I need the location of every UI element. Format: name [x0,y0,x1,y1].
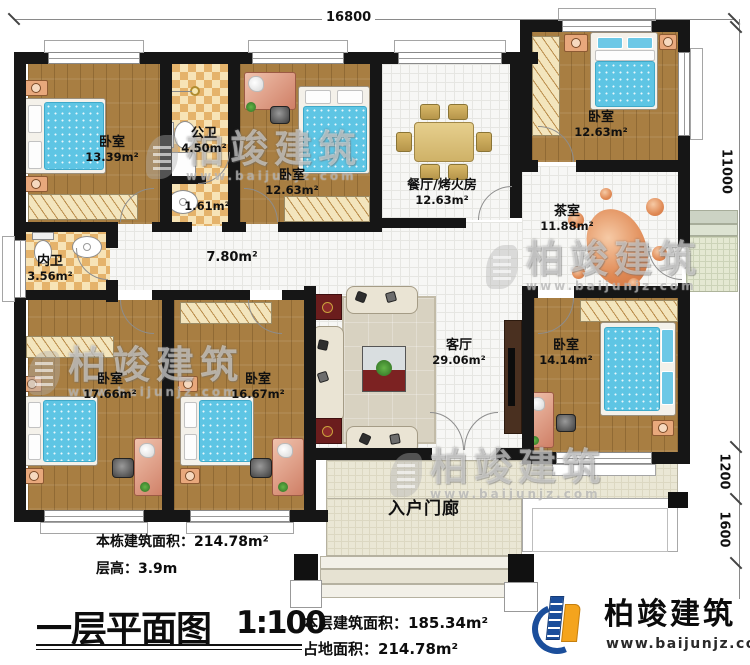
wall [278,222,382,232]
wall [308,448,432,460]
room-name: 客厅 [432,338,485,354]
dining-chair [396,132,412,152]
porch-corner-column [668,492,688,508]
floor-area-label: 本层建筑面积： [303,614,408,632]
bed [24,396,98,466]
dimension-right-step: 1200 [717,452,732,492]
nightstand [24,176,48,192]
shower-hose [170,91,192,92]
desk-lamp [248,76,264,92]
brand-logo: 柏竣建筑 www.baijunjz.com [528,590,748,662]
brand-url: www.baijunjz.com [606,636,750,652]
porch-side-step-inner [532,508,668,552]
room-area: 14.14m² [539,354,592,368]
window [678,52,690,136]
floor-area-value: 185.34m² [408,614,488,632]
wardrobe [532,36,560,136]
wall [382,218,466,228]
footprint-area: 占地面积：214.78m² [303,638,458,659]
room-area: 7.80m² [206,250,257,266]
room-label-dining: 餐厅/烤火房 12.63m² [407,178,477,207]
window [44,510,144,522]
room-name: 卧室 [231,372,284,388]
porch-step-1 [320,556,510,569]
floor-area: 本层建筑面积：185.34m² [303,612,488,633]
wardrobe [26,336,114,358]
wall [106,222,118,248]
window [556,452,652,464]
window-sill [552,464,656,476]
dimension-line-right [739,19,740,599]
floor-height: 层高：3.9m [96,558,177,578]
footprint-label: 占地面积： [303,640,378,658]
room-area: 12.63m² [407,194,477,208]
room-name: 茶室 [540,204,593,220]
floor-height-value: 3.9m [138,561,177,577]
plant-icon [278,482,288,492]
plant-icon [140,482,150,492]
wall [160,52,172,230]
dimension-tick [730,557,743,570]
room-label-tea: 茶室 11.88m² [540,204,593,233]
room-label-bedroom6: 卧室 14.14m² [539,338,592,367]
room-area: 16.67m² [231,388,284,402]
nightstand [24,80,48,96]
room-area: 11.88m² [540,220,593,234]
cushion [317,339,329,351]
window [398,52,502,64]
room-area: 3.56m² [27,270,72,284]
room-area: 4.50m² [181,142,226,156]
desk-lamp [139,443,155,458]
window [48,52,140,64]
room-name: 卧室 [265,168,318,184]
room-name: 卧室 [539,338,592,354]
room-label-porch: 入户门廊 [388,494,460,519]
nightstand [178,376,198,392]
bed [298,86,370,174]
room-label-bedroom3: 卧室 12.63m² [574,110,627,139]
room-label-living: 客厅 29.06m² [432,338,485,367]
room-area: 12.63m² [574,126,627,140]
room-area: 1.61m² [184,200,229,214]
tv-icon [508,348,515,406]
dining-table [414,122,474,162]
tea-rug-dot [572,266,585,279]
wall [370,52,382,230]
cushion [389,433,401,445]
wall [26,290,118,300]
wall [678,135,690,247]
toilet-tank [32,232,54,240]
bed [590,32,658,110]
brand-name: 柏竣建筑 [604,600,736,630]
wall [574,286,690,298]
porch-pillar-right [508,554,534,582]
window-sill [690,48,703,140]
room-area: 29.06m² [432,354,485,368]
room-label-inner-bath: 内卫 3.56m² [27,254,72,283]
bed [600,322,676,416]
tea-rug-dot [600,188,612,200]
nightstand [652,420,674,436]
room-name: 卧室 [85,135,138,151]
window [14,240,26,298]
room-name: 卧室 [574,110,627,126]
porch-pillar-left [294,554,318,580]
floor-plan-image: 柏竣建筑 www.baijunjz.com 柏竣建筑 www.baijunjz.… [0,0,750,665]
room-name: 公卫 [181,126,226,142]
nightstand [180,468,200,484]
room-label-bath-lobby: 1.61m² [184,200,229,214]
window [252,52,344,64]
footprint-value: 214.78m² [378,640,458,658]
wardrobe [580,300,678,322]
wall [106,280,118,302]
desk-chair [250,458,272,478]
dimension-top-value: 16800 [322,10,375,25]
dining-chair [420,104,440,120]
wall [162,290,174,522]
tea-rug-dot [646,198,664,216]
dimension-right-porch: 1600 [717,510,732,550]
porch-step-2 [320,569,510,584]
desk-chair [112,458,134,478]
wardrobe [284,196,370,222]
room-area: 17.66m² [83,388,136,402]
wall [678,283,690,464]
building-total-value: 214.78m² [194,534,269,550]
room-area: 12.63m² [265,184,318,198]
deck-band-2 [686,224,738,236]
dimension-tick [730,441,743,454]
dimension-tick [730,493,743,506]
porch-pillar-base-left [290,580,322,608]
side-cabinet [312,418,342,444]
window [562,20,652,32]
dining-chair [476,132,492,152]
wall [14,222,118,232]
table-plant-icon [376,360,392,376]
room-label-bedroom2: 卧室 12.63m² [265,168,318,197]
bed [180,396,254,466]
wall [522,286,534,464]
side-deck [686,236,738,292]
room-label-public-bath: 公卫 4.50m² [181,126,226,155]
side-cabinet [312,294,342,320]
room-label-bedroom1: 卧室 13.39m² [85,135,138,164]
wall [576,160,690,172]
wall [678,20,690,52]
desk-lamp [277,443,293,458]
wall [304,286,316,512]
floor-height-label: 层高： [96,561,138,577]
room-label-corridor: 7.80m² [206,250,257,266]
nightstand [24,468,44,484]
porch-step-3 [320,584,510,598]
room-label-bedroom5: 卧室 16.67m² [231,372,284,401]
wall [222,222,246,232]
wall [228,52,240,230]
window [190,510,290,522]
room-name: 卧室 [83,372,136,388]
nightstand [659,34,677,50]
building-total-area: 本栋建筑面积：214.78m² [96,531,269,551]
dining-chair [448,104,468,120]
wall [522,286,538,298]
desk-chair [270,106,290,124]
building-total-label: 本栋建筑面积： [96,534,194,550]
wall [520,20,532,172]
wall [152,222,192,232]
plant-icon [246,102,256,112]
deck-band-1 [686,210,738,224]
title-underline [36,644,302,650]
nightstand [564,34,588,52]
room-label-bedroom4: 卧室 17.66m² [83,372,136,401]
dimension-right-main: 11000 [719,142,734,202]
desk-chair [556,414,576,432]
room-name: 内卫 [27,254,72,270]
room-name: 餐厅/烤火房 [407,178,477,194]
room-area: 13.39m² [85,151,138,165]
